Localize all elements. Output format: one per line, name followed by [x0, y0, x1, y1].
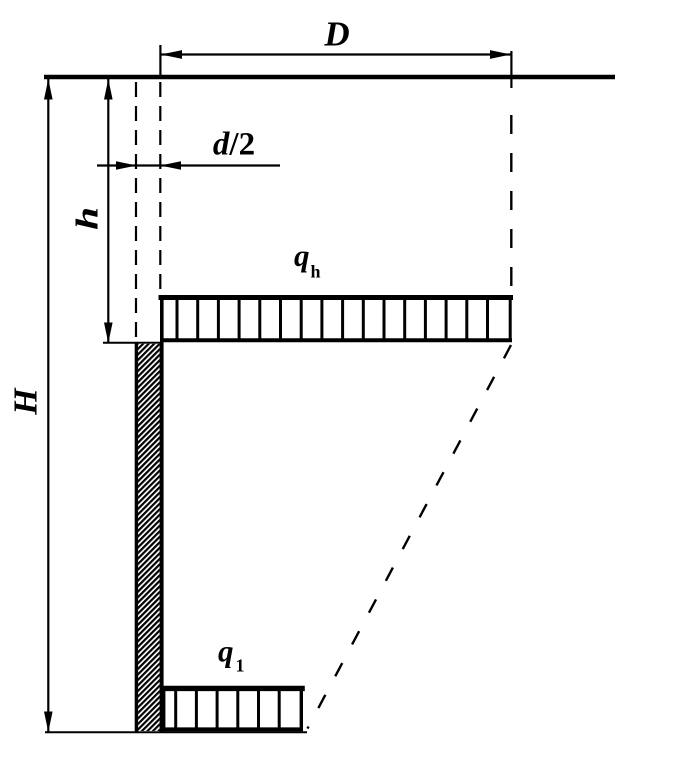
svg-text:1: 1 [236, 656, 245, 676]
svg-text:h: h [311, 262, 321, 282]
svg-text:h: h [70, 207, 105, 230]
svg-text:H: H [8, 387, 45, 416]
svg-text:q: q [218, 634, 234, 669]
svg-text:d/2: d/2 [213, 127, 255, 163]
svg-text:D: D [323, 15, 349, 54]
svg-text:q: q [294, 238, 310, 273]
